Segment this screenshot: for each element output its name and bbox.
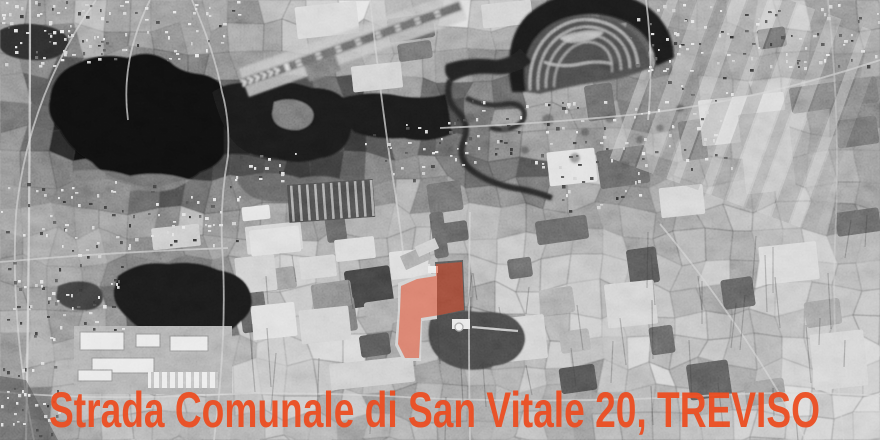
svg-text:Strada Comunale di San Vitale: Strada Comunale di San Vitale 20, TREVIS…: [49, 382, 820, 438]
